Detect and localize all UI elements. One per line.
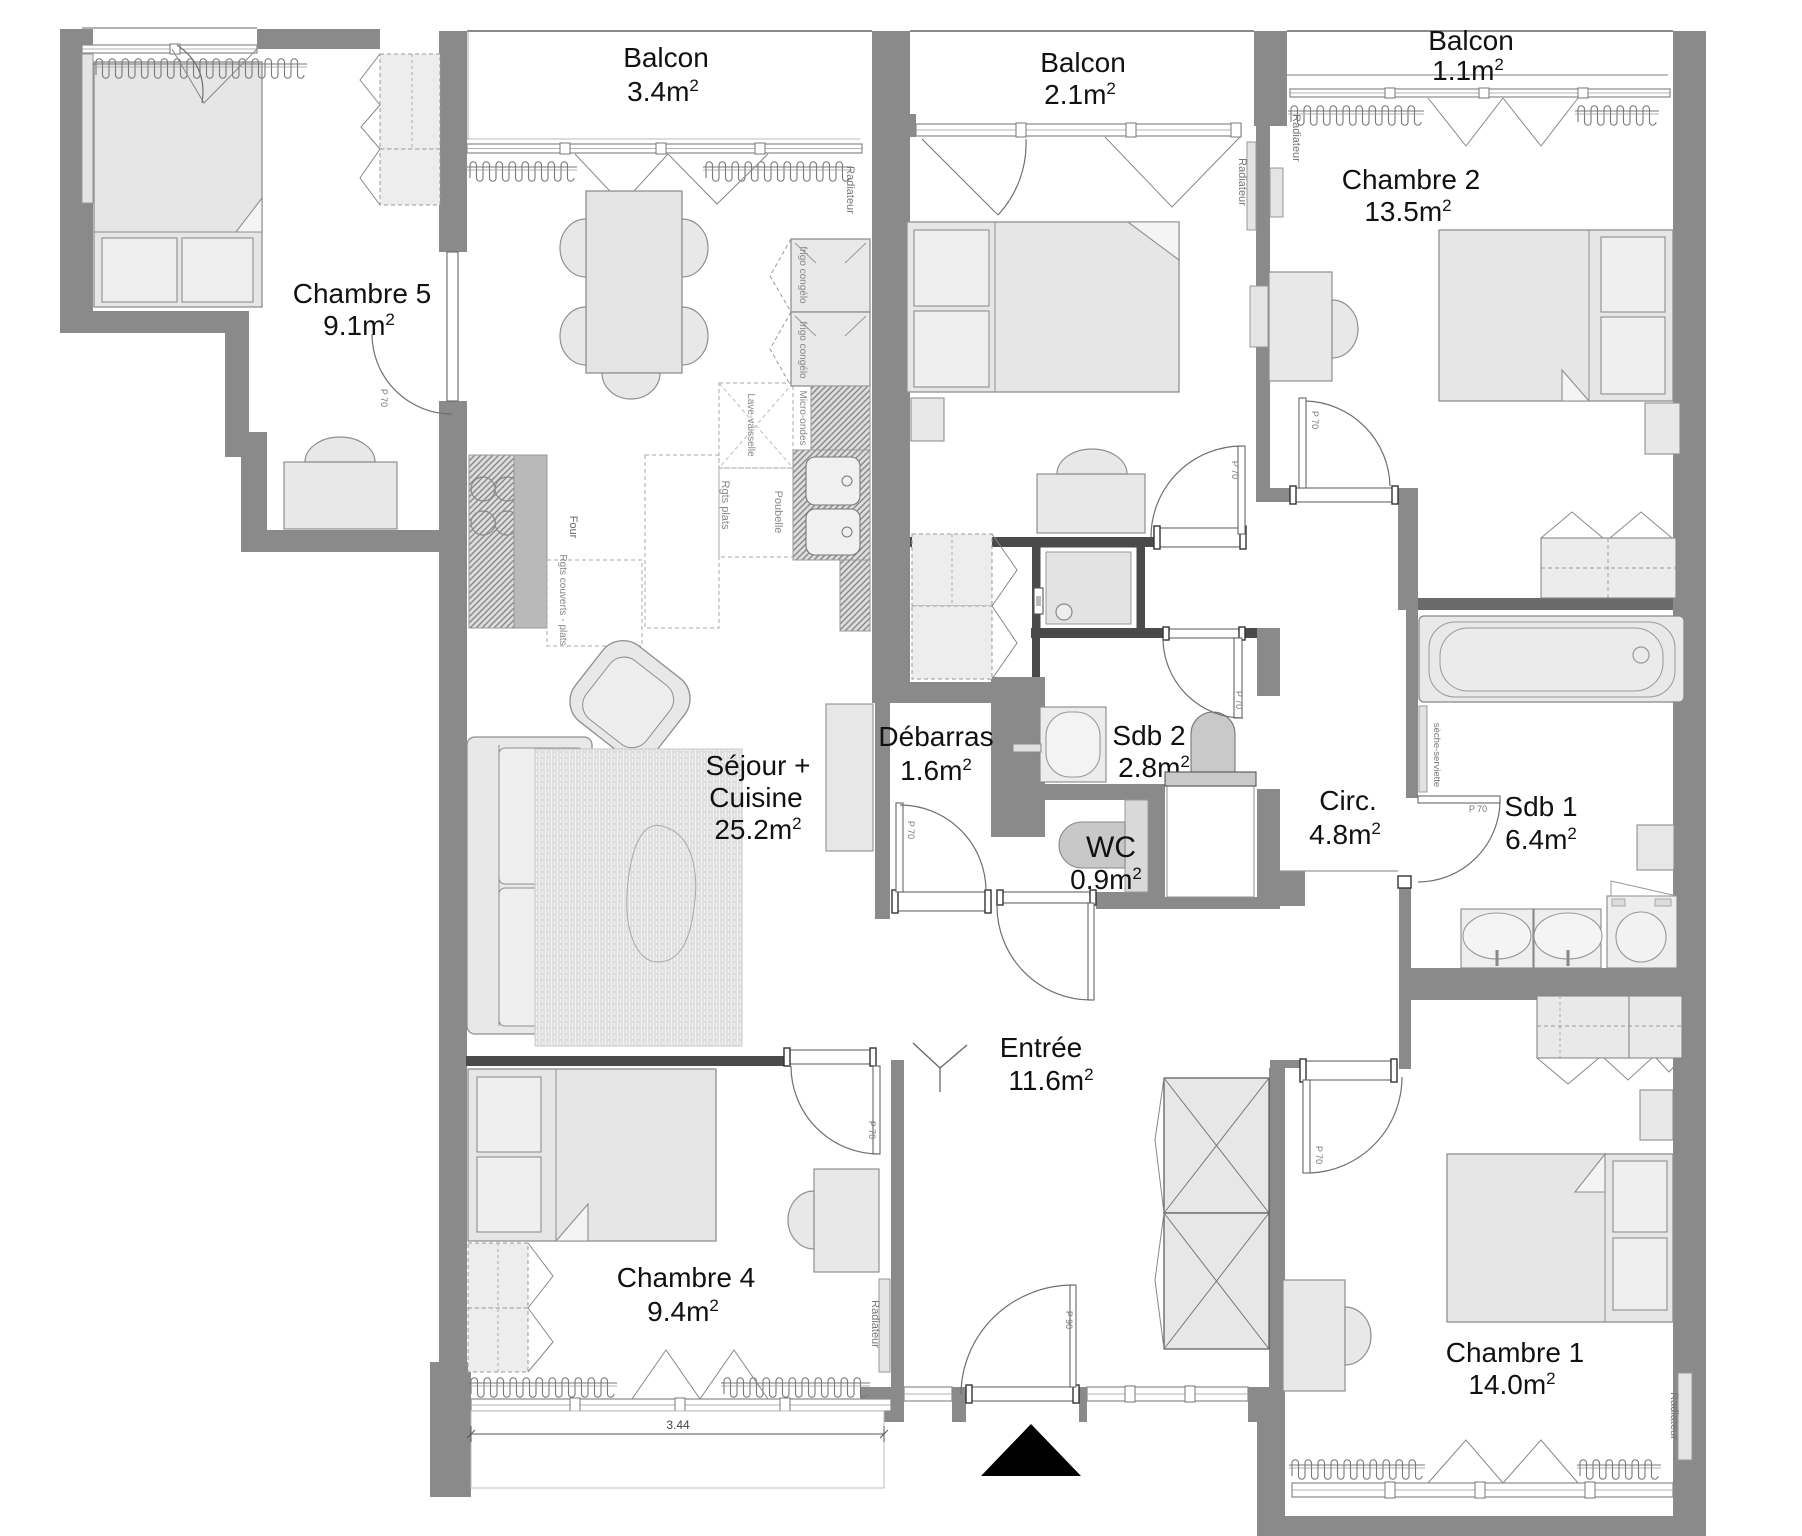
svg-text:3.44: 3.44	[666, 1418, 690, 1432]
svg-text:Radiateur: Radiateur	[869, 1300, 881, 1348]
svg-text:9.1m2: 9.1m2	[323, 310, 395, 341]
svg-text:Sdb 1: Sdb 1	[1504, 791, 1577, 822]
svg-text:Four: Four	[567, 516, 579, 539]
svg-text:Radiateur: Radiateur	[1290, 114, 1302, 162]
svg-text:P 70: P 70	[1314, 1146, 1324, 1164]
svg-text:25.2m2: 25.2m2	[714, 814, 801, 845]
svg-text:Radiateur: Radiateur	[844, 166, 856, 214]
svg-text:Balcon: Balcon	[623, 42, 709, 73]
svg-text:3.4m2: 3.4m2	[627, 76, 699, 107]
svg-text:WC: WC	[1086, 831, 1136, 864]
svg-text:Chambre 4: Chambre 4	[617, 1262, 756, 1293]
svg-text:14.0m2: 14.0m2	[1468, 1369, 1555, 1400]
svg-text:Rgts couverts - plats: Rgts couverts - plats	[557, 554, 568, 645]
svg-text:6.4m2: 6.4m2	[1505, 824, 1577, 855]
svg-text:0.9m2: 0.9m2	[1070, 864, 1142, 895]
svg-text:Chambre 5: Chambre 5	[293, 278, 432, 309]
svg-text:P 70: P 70	[1310, 411, 1320, 429]
svg-text:11.6m2: 11.6m2	[1008, 1065, 1093, 1096]
svg-text:Rgts plats: Rgts plats	[719, 481, 731, 530]
svg-text:sèche-serviette: sèche-serviette	[1431, 723, 1442, 787]
svg-text:9.4m2: 9.4m2	[647, 1296, 719, 1327]
svg-text:1.6m2: 1.6m2	[900, 755, 972, 786]
svg-text:Entrée: Entrée	[1000, 1032, 1083, 1063]
svg-text:Poubelle: Poubelle	[772, 491, 784, 534]
svg-text:P 70: P 70	[1234, 691, 1244, 709]
svg-text:Séjour +: Séjour +	[705, 750, 810, 781]
svg-text:Chambre 2: Chambre 2	[1342, 164, 1481, 195]
svg-text:4.8m2: 4.8m2	[1309, 819, 1381, 850]
svg-text:P 70: P 70	[906, 821, 916, 839]
svg-text:Circ.: Circ.	[1319, 785, 1377, 816]
svg-text:13.5m2: 13.5m2	[1364, 196, 1451, 227]
svg-text:Débarras: Débarras	[878, 721, 993, 752]
svg-text:Sdb 2: Sdb 2	[1112, 720, 1185, 751]
svg-text:Radiateur: Radiateur	[1236, 158, 1248, 206]
svg-text:Balcon: Balcon	[1040, 47, 1126, 78]
svg-text:Cuisine: Cuisine	[709, 782, 802, 813]
svg-text:P 70: P 70	[867, 1121, 877, 1139]
svg-text:Balcon: Balcon	[1428, 25, 1514, 56]
svg-text:Lave-vaisselle: Lave-vaisselle	[745, 393, 756, 457]
svg-text:P 70: P 70	[1230, 461, 1240, 479]
svg-text:P 90: P 90	[1064, 1311, 1074, 1329]
svg-text:frigo congélo: frigo congélo	[797, 246, 808, 304]
svg-text:Micro-ondes: Micro-ondes	[797, 390, 808, 445]
svg-text:2.1m2: 2.1m2	[1044, 79, 1116, 110]
svg-text:P 70: P 70	[379, 389, 389, 407]
svg-text:Radiateur: Radiateur	[1668, 1392, 1680, 1440]
svg-text:frigo congélo: frigo congélo	[797, 321, 808, 379]
svg-text:1.1m2: 1.1m2	[1432, 55, 1504, 86]
svg-text:P 70: P 70	[1469, 804, 1487, 814]
svg-text:Chambre 1: Chambre 1	[1446, 1337, 1585, 1368]
